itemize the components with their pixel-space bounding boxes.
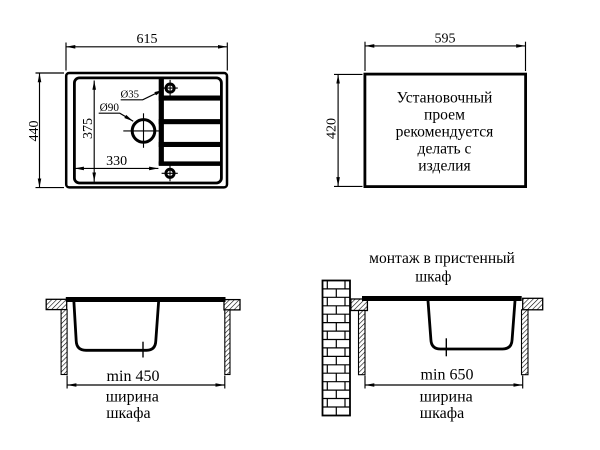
svg-text:Ø35: Ø35: [120, 89, 139, 101]
svg-text:min 450: min 450: [107, 368, 160, 385]
svg-text:330: 330: [106, 154, 127, 169]
svg-text:375: 375: [81, 118, 96, 139]
svg-text:шкафа: шкафа: [420, 405, 464, 422]
svg-text:ширина: ширина: [420, 388, 473, 405]
svg-text:420: 420: [325, 118, 340, 139]
svg-text:проем: проем: [424, 107, 465, 124]
svg-text:шкаф: шкаф: [415, 268, 451, 285]
svg-text:рекомендуется: рекомендуется: [396, 124, 494, 141]
svg-text:ширина: ширина: [106, 388, 159, 405]
svg-text:min 650: min 650: [421, 367, 474, 384]
svg-text:делать с: делать с: [418, 141, 472, 158]
svg-text:615: 615: [137, 32, 158, 47]
svg-text:изделия: изделия: [418, 158, 470, 175]
svg-text:Ø90: Ø90: [100, 102, 120, 114]
svg-text:Установочный: Установочный: [397, 90, 493, 107]
svg-text:595: 595: [435, 32, 456, 47]
svg-text:монтаж в пристенный: монтаж в пристенный: [369, 250, 515, 267]
svg-text:шкафа: шкафа: [106, 405, 150, 422]
